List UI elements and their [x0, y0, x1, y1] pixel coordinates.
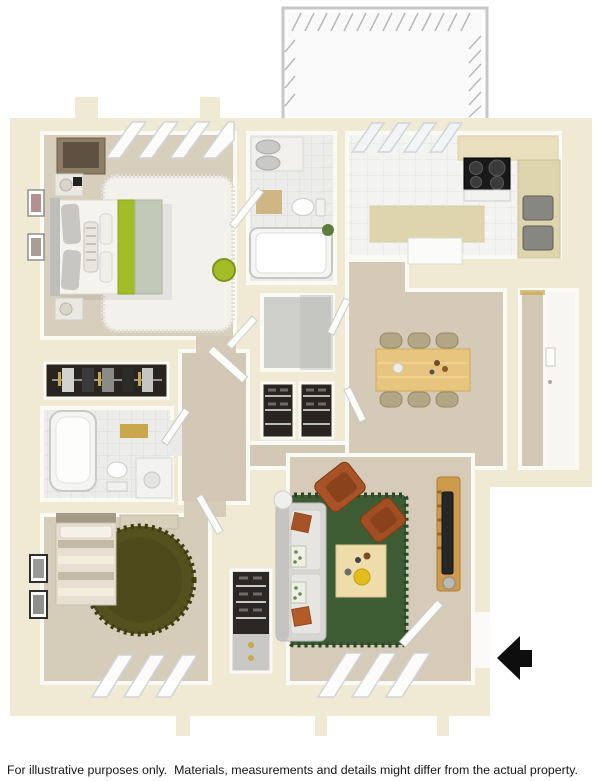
botanical-pillow: [291, 582, 306, 603]
bathtub-icon: [250, 228, 332, 278]
disclaimer-text: For illustrative purposes only. Material…: [7, 763, 599, 778]
botanical-pillow: [291, 546, 306, 567]
closet-bay: [300, 383, 333, 438]
round-side-table: [274, 491, 292, 509]
balcony-deck-shade: [288, 14, 482, 116]
bathtub-icon: [50, 411, 96, 491]
stool-icon: [144, 472, 160, 488]
oven-handle: [464, 190, 510, 201]
screenshot-root: For illustrative purposes only. Material…: [0, 0, 600, 781]
toilet-icon: [292, 199, 325, 217]
tv-console: [437, 477, 460, 591]
vanity-with-stool: [136, 458, 172, 498]
dresser: [57, 138, 105, 174]
gold-trim: [520, 290, 545, 295]
island-counter: [370, 206, 484, 242]
clock-icon: [73, 177, 82, 186]
gold-knob-icon: [248, 655, 254, 661]
dining-table: [376, 349, 470, 391]
sofa: [276, 503, 326, 641]
gold-towels: [120, 424, 148, 438]
pillow: [61, 203, 82, 244]
headboard: [50, 198, 60, 296]
entry-closet-strip-floor: [520, 290, 545, 468]
pillow: [61, 249, 82, 290]
balcony: [283, 8, 487, 120]
dining-area: [376, 333, 470, 407]
headboard: [56, 513, 116, 523]
floor-plan-graphic: [0, 0, 600, 745]
basin-icon: [256, 140, 280, 154]
basin-icon: [256, 156, 280, 170]
striped-pillow: [84, 222, 98, 272]
coffee-table: [336, 545, 386, 597]
entry-arrow-icon: [497, 636, 532, 680]
nightstand-bottom: [55, 298, 83, 320]
sink-basin-icon: [523, 196, 553, 220]
lamp-icon: [60, 303, 72, 315]
plant-icon: [322, 224, 334, 236]
stove-icon: [464, 158, 510, 201]
gold-knob-icon: [248, 642, 254, 648]
orange-pillow: [291, 513, 311, 533]
entry-door-opening: [473, 612, 490, 668]
yellow-bowl-icon: [354, 569, 370, 585]
bed-runner: [118, 200, 135, 294]
doorbell-icon: [548, 380, 552, 384]
pillow: [100, 214, 112, 244]
side-closet: [45, 363, 168, 398]
entry-nook-floor: [545, 290, 577, 468]
refrigerator-icon: [408, 238, 462, 264]
foot-blanket: [135, 200, 162, 294]
closet-3: [231, 570, 271, 672]
tv-icon: [442, 492, 453, 574]
nightstand-top: [55, 174, 83, 196]
closet-bay: [262, 383, 294, 438]
master-bed: [50, 198, 172, 300]
pillow: [100, 252, 112, 282]
lamp-icon: [60, 179, 72, 191]
wall-panel-icon: [546, 348, 555, 366]
speaker-icon: [443, 577, 455, 589]
lime-pouf: [213, 259, 235, 281]
sink-counter: [518, 160, 560, 258]
pillow: [60, 526, 112, 538]
counter: [458, 136, 558, 160]
sink-basin-icon: [523, 226, 553, 250]
orange-pillow: [292, 607, 312, 627]
single-bed: [56, 513, 116, 605]
